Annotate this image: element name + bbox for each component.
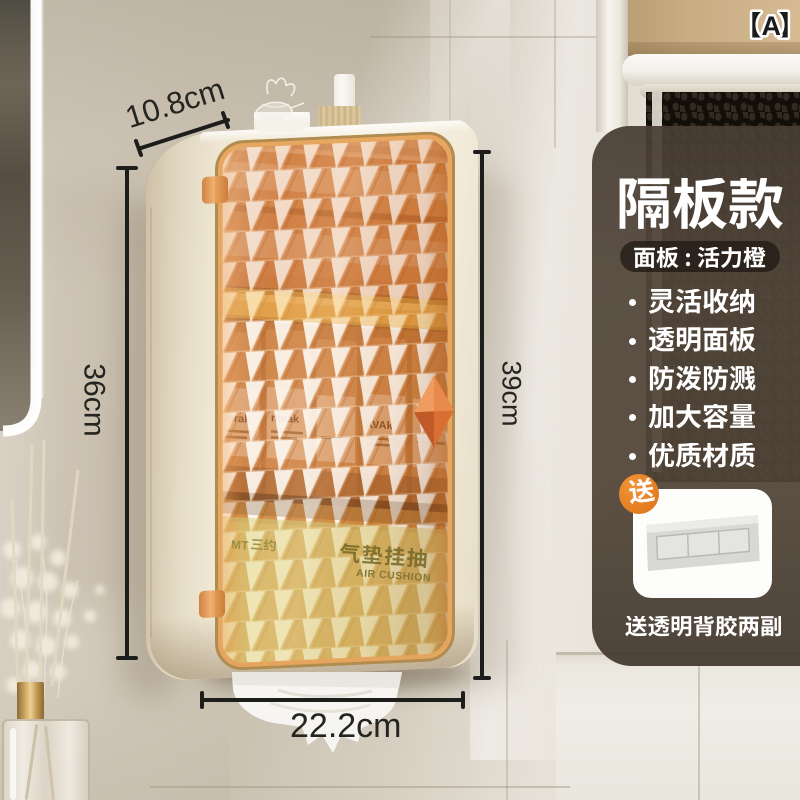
svg-text:A: A [762, 11, 782, 41]
